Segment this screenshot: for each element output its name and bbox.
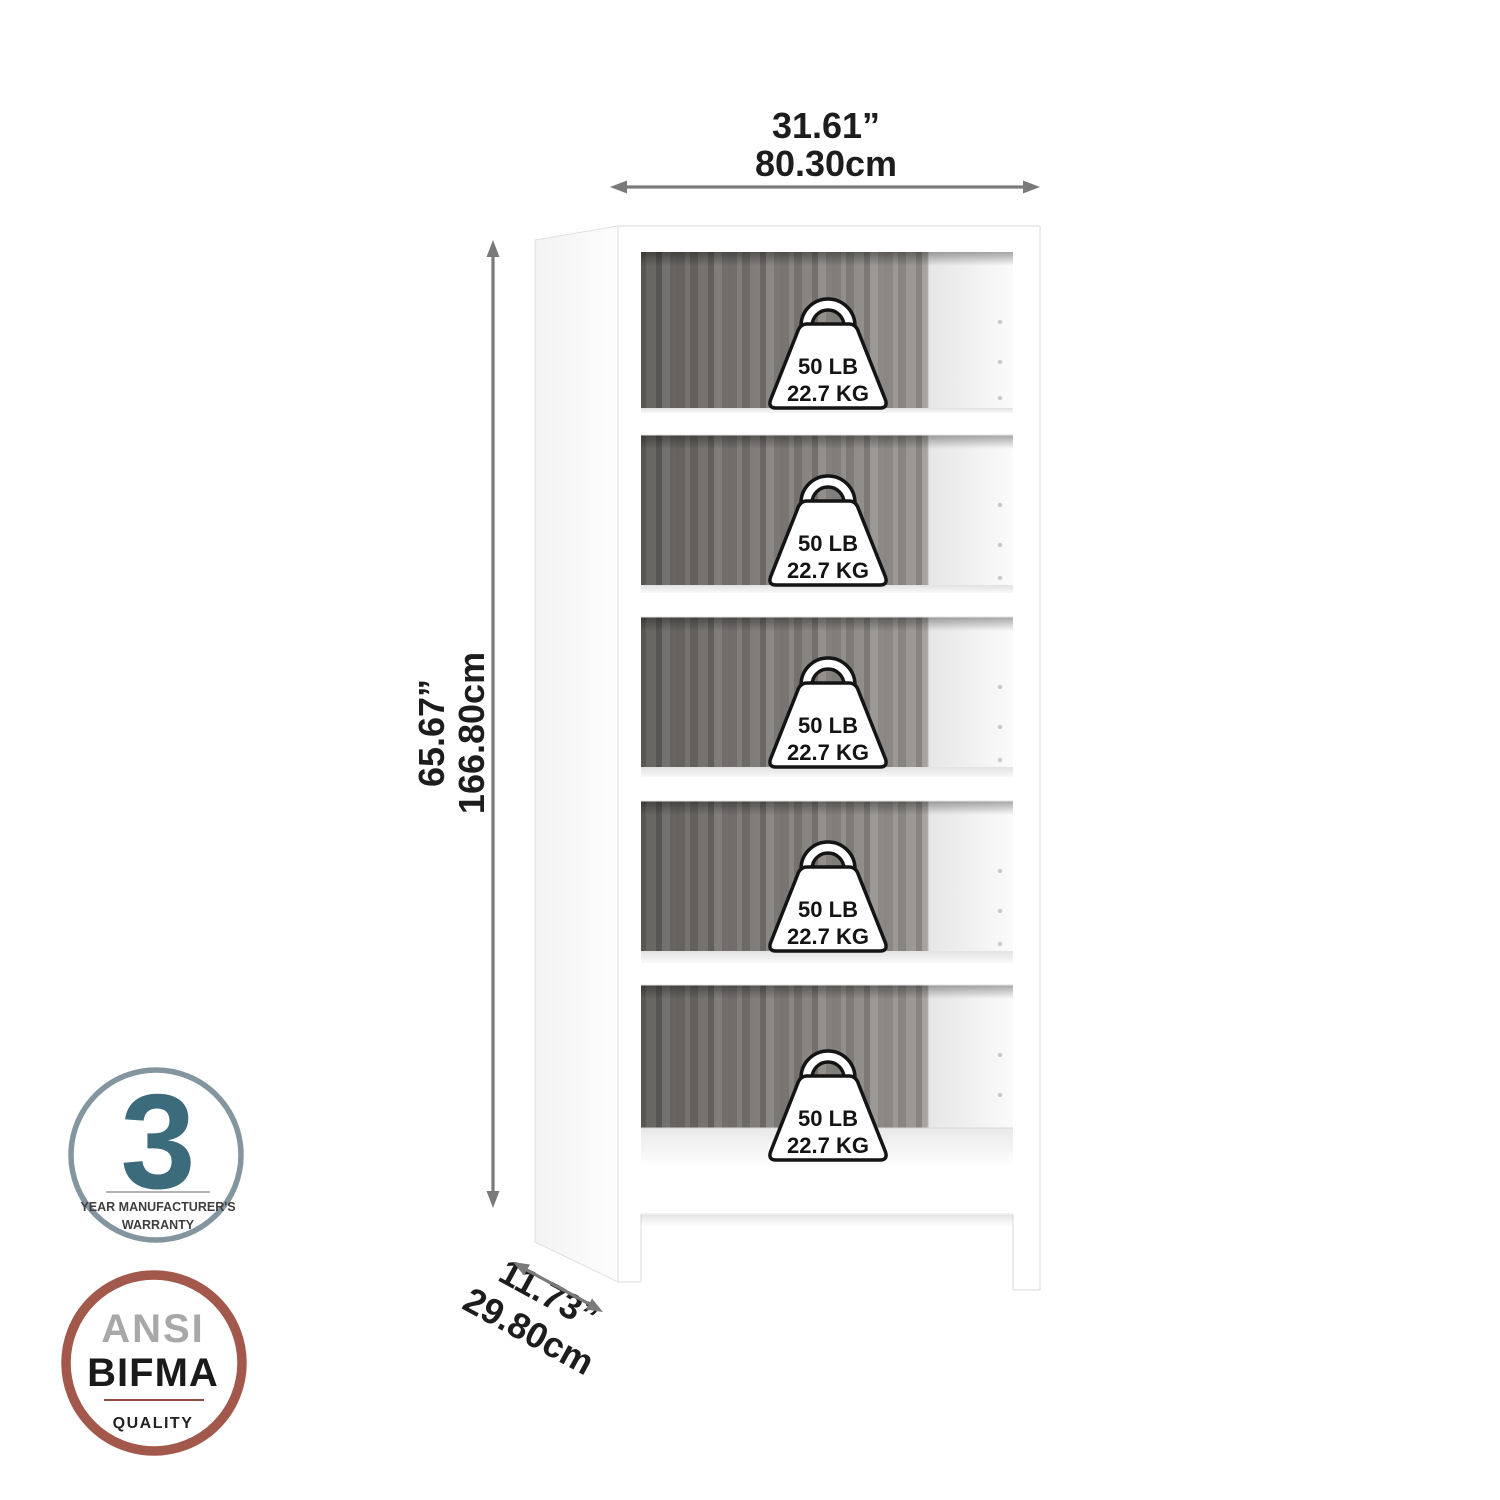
height-cm-label: 166.80cm [451,652,492,814]
weight-lb-label: 50 LB [798,354,858,379]
width-cm-label: 80.30cm [755,143,897,184]
width-dimension: 31.61” 80.30cm [610,105,1040,194]
inner-side-panel [928,435,1013,585]
opening-top-shadow [641,435,1013,449]
warranty-years: 3 [120,1066,195,1217]
shelf-4 [641,951,1013,985]
height-dimension: 65.67” 166.80cm [411,240,500,1208]
shelf-1 [641,408,1013,435]
weight-kg-label: 22.7 KG [787,558,869,583]
weight-lb-label: 50 LB [798,1106,858,1131]
weight-kg-label: 22.7 KG [787,924,869,949]
under-shelf-shadow [641,1215,1013,1227]
weight-kg-label: 22.7 KG [787,1133,869,1158]
opening-top-shadow [641,617,1013,631]
back-panel-shading [641,985,928,1128]
ansi-bifma-badge: ANSI BIFMA QUALITY [66,1275,242,1451]
ansi-label: ANSI [101,1307,205,1351]
opening-top-shadow [641,985,1013,999]
weight-kg-label: 22.7 KG [787,740,869,765]
bookcase-diagram-svg: 50 LB 22.7 KG 50 LB 22.7 KG 50 LB 22.7 K… [0,0,1500,1500]
opening-top-shadow [641,252,1013,266]
height-inches-label: 65.67” [411,679,452,787]
shelf-2 [641,585,1013,617]
warranty-line1: YEAR MANUFACTURER'S [80,1200,235,1214]
product-dimension-diagram: 50 LB 22.7 KG 50 LB 22.7 KG 50 LB 22.7 K… [0,0,1500,1500]
weight-lb-label: 50 LB [798,531,858,556]
quality-label: QUALITY [113,1415,194,1432]
bottom-shelf-front [641,1164,1013,1214]
bookcase: 50 LB 22.7 KG 50 LB 22.7 KG 50 LB 22.7 K… [535,226,1040,1290]
weight-kg-label: 22.7 KG [787,381,869,406]
inner-side-panel [928,617,1013,767]
weight-lb-label: 50 LB [798,713,858,738]
width-inches-label: 31.61” [772,105,880,146]
inner-side-panel [928,252,1013,408]
opening-top-shadow [641,801,1013,815]
shelf-3 [641,767,1013,801]
weight-lb-label: 50 LB [798,897,858,922]
inner-side-panel [928,801,1013,951]
warranty-line2: WARRANTY [122,1218,195,1232]
side-panel [535,226,618,1282]
warranty-badge: 3 YEAR MANUFACTURER'S WARRANTY [71,1066,241,1240]
bifma-label: BIFMA [87,1351,219,1395]
